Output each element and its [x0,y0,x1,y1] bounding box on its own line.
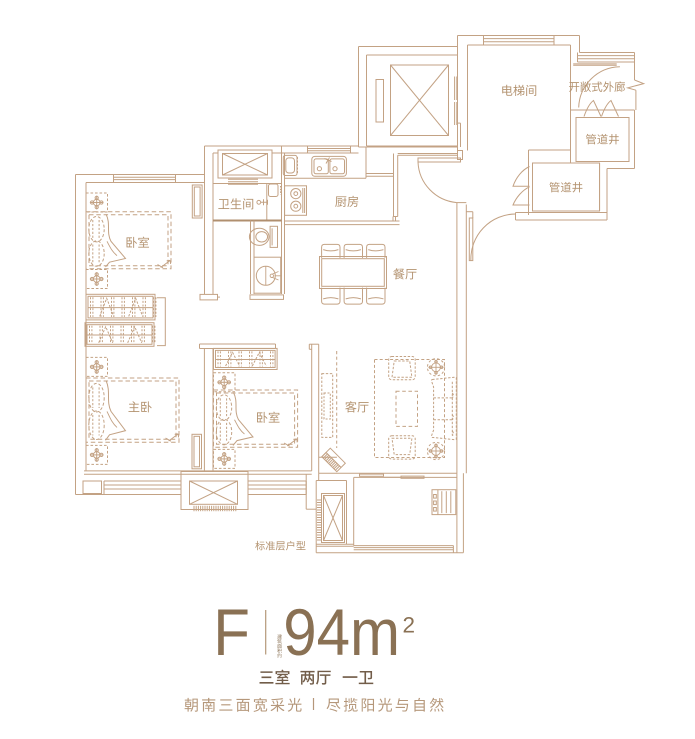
svg-text:2: 2 [403,612,416,637]
svg-text:94m: 94m [283,596,400,669]
svg-text:F: F [213,596,250,669]
